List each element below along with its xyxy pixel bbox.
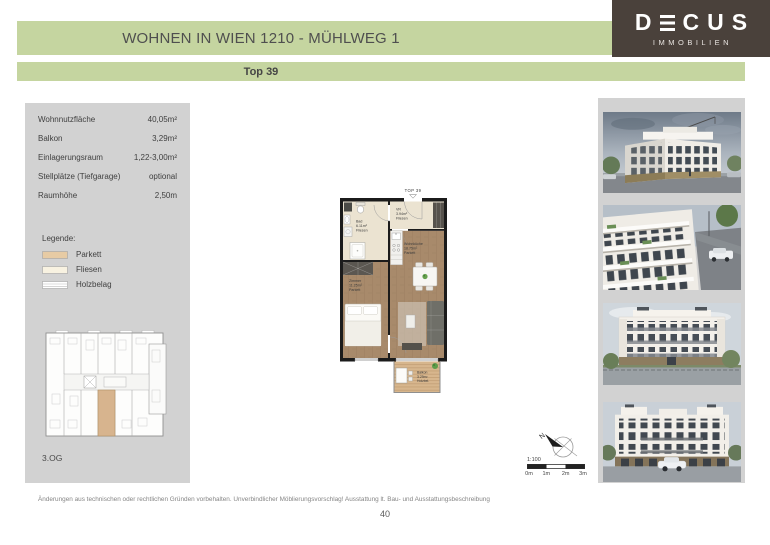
info-value: 1,22-3,00m² [134,153,177,172]
legend-item-holzbelag: Holzbelag [42,280,177,289]
floorplan: TOP 39 [340,185,447,393]
info-row: Einlagerungsraum 1,22-3,00m² [38,153,177,172]
unit-subtitle-bar: Top 39 [17,62,745,81]
info-row: Wohnnutzfläche 40,05m² [38,115,177,134]
room-label: Wohnküche [404,242,423,246]
plant-icon [432,363,438,369]
info-value: 2,50m [155,191,177,210]
room-area: 11.25m² [349,284,363,288]
room-floor: Fliesen [356,229,368,233]
unit-info-panel: Wohnnutzfläche 40,05m² Balkon 3,29m² Ein… [25,103,190,483]
scale-tick: 0m [525,471,533,477]
brand-logo-tagline: IMMOBILIEN [653,38,732,47]
scale-bar: 1:100 0m 1m 2m 3m [527,457,585,479]
kitchen-counter [391,231,403,265]
floor-level-label: 3.OG [42,453,62,463]
info-label: Stellplätze (Tiefgarage) [38,172,120,191]
legend-label: Parkett [76,250,101,259]
page-number: 40 [0,509,770,519]
building-rendering-garden-elevation [603,303,741,385]
info-row: Balkon 3,29m² [38,134,177,153]
scale-tick: 3m [579,471,587,477]
building-gallery [598,98,745,483]
highlighted-unit [98,390,115,436]
room-area: 6.11m² [356,224,368,228]
legend-title: Legende: [42,234,177,243]
info-value: optional [149,172,177,191]
info-label: Wohnnutzfläche [38,115,95,134]
brand-logo: DCUS IMMOBILIEN [612,0,770,57]
info-label: Raumhöhe [38,191,77,210]
info-value: 3,29m² [152,134,177,153]
living-area [398,301,444,350]
building-rendering-street-elevation [603,402,741,482]
floorplan-unit-label: TOP 39 [405,188,422,193]
parkett-swatch-icon [42,251,68,259]
header-title-bar: WOHNEN IN WIEN 1210 - MÜHLWEG 1 [17,21,624,55]
building-rendering-balcony-closeup [603,205,741,290]
room-area: 3.94m² [396,212,408,216]
info-value: 40,05m² [148,115,177,134]
vr-wardrobe [433,203,444,229]
footer-disclaimer: Änderungen aus technischen oder rechtlic… [38,496,490,503]
info-label: Balkon [38,134,62,153]
floor-legend: Legende: Parkett Fliesen Holzbel [25,210,190,289]
room-floor: Fliesen [396,217,408,221]
page: WOHNEN IN WIEN 1210 - MÜHLWEG 1 DCUS IMM… [0,0,770,545]
room-floor: Parkett [349,288,360,292]
legend-item-parkett: Parkett [42,250,177,259]
overview-floorplan [42,330,171,447]
legend-item-fliesen: Fliesen [42,265,177,274]
building-rendering-corner-view [603,112,741,193]
info-row: Stellplätze (Tiefgarage) optional [38,172,177,191]
legend-label: Fliesen [76,265,102,274]
scale-tick: 2m [562,471,570,477]
windows [355,359,438,361]
info-row: Raumhöhe 2,50m [38,191,177,210]
room-floor: Parkett [404,251,415,255]
scale-tick: 1m [542,471,550,477]
room-floor: Holzbel. [417,379,429,383]
compass-north-label: N [538,432,546,441]
room-area: 18.75m² [404,247,418,251]
room-label: Bad [356,220,362,224]
scale-bar-graphic [527,464,585,469]
holzbelag-swatch-icon [42,281,68,289]
page-title: WOHNEN IN WIEN 1210 - MÜHLWEG 1 [122,30,400,47]
info-label: Einlagerungsraum [38,153,103,172]
unit-subtitle: Top 39 [244,66,279,78]
unit-info-rows: Wohnnutzfläche 40,05m² Balkon 3,29m² Ein… [25,103,190,210]
room-label: Zimmer [349,279,362,283]
fliesen-swatch-icon [42,266,68,274]
brand-logo-wordmark: DCUS [635,11,747,34]
legend-label: Holzbelag [76,280,112,289]
scale-ticks: 0m 1m 2m 3m [527,471,585,479]
scale-ratio: 1:100 [527,457,585,463]
room-label: VR [396,208,401,212]
entrance-marker-icon [410,195,417,199]
